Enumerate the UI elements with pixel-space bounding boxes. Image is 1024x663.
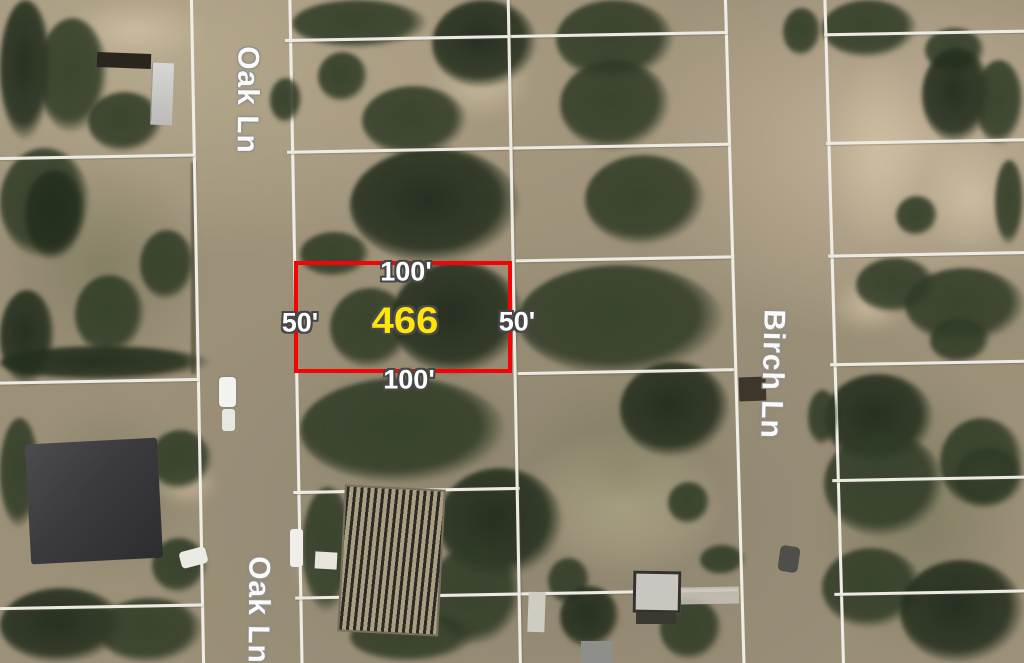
parcel-line <box>826 138 1024 145</box>
house-striped-roof <box>337 484 446 636</box>
tree-cluster <box>783 8 821 56</box>
tree-cluster <box>270 78 302 123</box>
street-label-oak-ln-top: Oak Ln <box>230 46 265 154</box>
white-truck-oak <box>219 377 236 407</box>
parcel-line <box>516 255 732 262</box>
building-roof-dark-nw <box>97 52 151 69</box>
parcel-line <box>834 589 1024 596</box>
dimension-label-top: 100' <box>380 257 431 288</box>
street-label-oak-ln-bottom: Oak Ln <box>241 556 276 663</box>
house-roof-sw <box>25 438 163 565</box>
tree-cluster <box>808 390 838 445</box>
lot-number-label: 466 <box>372 300 439 342</box>
parcel-line <box>830 359 1024 366</box>
white-shed-road-edge <box>315 551 338 569</box>
parcel-line <box>0 603 203 610</box>
street-label-birch-ln: Birch Ln <box>753 309 790 440</box>
parcel-line <box>518 368 734 375</box>
white-truck-road-edge <box>290 529 303 567</box>
dimension-label-left: 50' <box>282 308 318 339</box>
driveway-pad <box>681 586 739 604</box>
parcel-line <box>0 378 199 385</box>
parcel-line <box>828 251 1024 258</box>
shed-annex <box>636 612 676 624</box>
small-shed <box>527 592 545 633</box>
white-trailer-oak <box>222 409 235 431</box>
parcel-line <box>832 475 1024 482</box>
parcel-line <box>0 153 195 160</box>
parcel-line <box>824 29 1024 36</box>
dark-car-birch <box>777 545 800 574</box>
building-metal-roof-nw <box>150 63 174 126</box>
shed <box>633 571 682 614</box>
dimension-label-right: 50' <box>499 307 535 338</box>
satellite-parcel-map: 100' 100' 50' 50' 466 Oak Ln Oak Ln Birc… <box>0 0 1024 663</box>
roof-bottom-edge <box>581 641 612 663</box>
dimension-label-bottom: 100' <box>383 365 434 396</box>
